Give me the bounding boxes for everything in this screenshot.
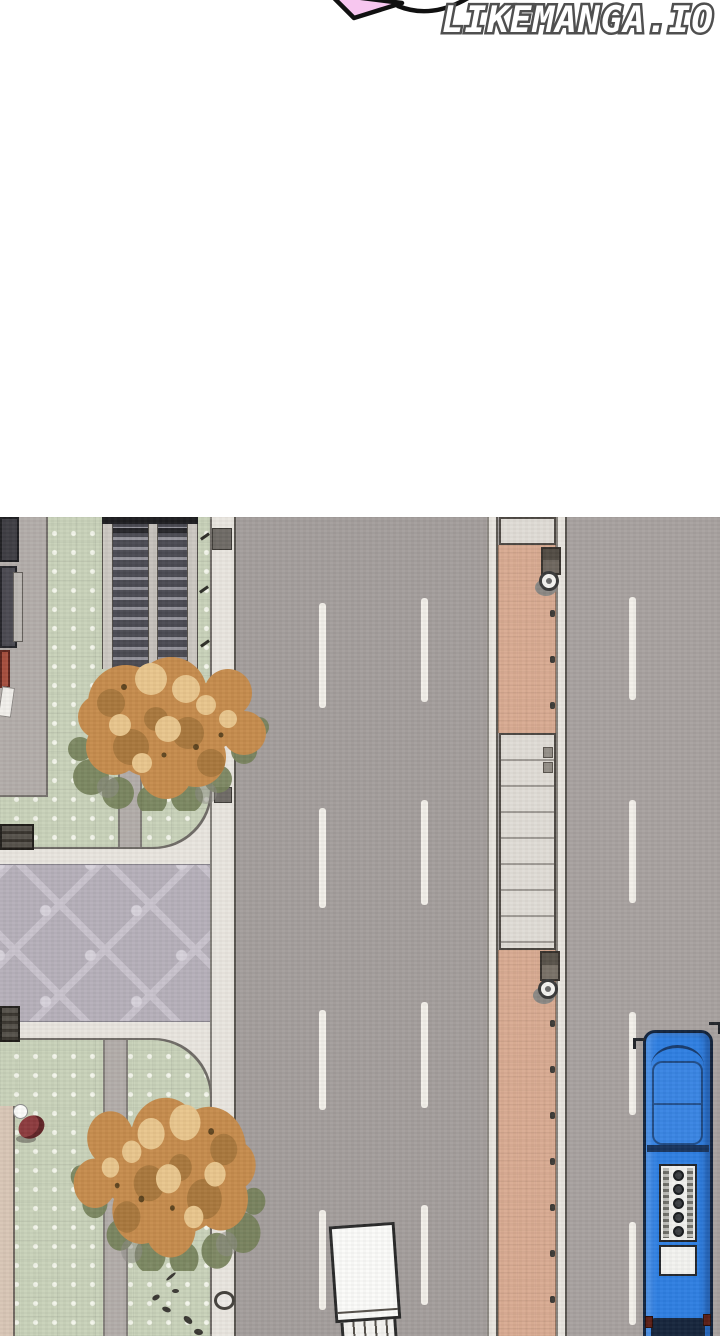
- lane-dash: [319, 808, 326, 908]
- truck-cab: [340, 1319, 398, 1336]
- road-median: [487, 517, 567, 1336]
- bubble-tail-shape: [330, 0, 402, 18]
- ramp-fixture: [543, 762, 553, 773]
- rooftop-panel: [13, 572, 23, 642]
- bus-roof-vent: [673, 1198, 684, 1209]
- bus-front-roof-panel: [652, 1061, 703, 1145]
- lane-dash: [629, 1012, 636, 1115]
- lane-dash: [421, 598, 428, 702]
- bollard: [550, 1066, 555, 1073]
- autumn-tree: [62, 1073, 277, 1271]
- median-curb-right: [556, 517, 567, 1336]
- median-pole: [539, 571, 559, 591]
- pedestrian-head: [13, 1104, 28, 1119]
- blue-bus: [643, 1030, 713, 1336]
- curb-grate: [212, 528, 232, 550]
- parked-scooter: [172, 1289, 179, 1293]
- bus-mirror-left-arm: [633, 1038, 636, 1049]
- tree-canopy: [68, 657, 269, 811]
- lane-dash: [629, 800, 636, 903]
- bollard: [550, 1204, 555, 1211]
- bus-roof-seam: [654, 1103, 701, 1105]
- red-kiosk: [0, 650, 10, 688]
- stair-beam: [158, 528, 187, 533]
- bus-roof-vent: [673, 1212, 684, 1223]
- bus-grille-slat: [687, 1168, 693, 1238]
- stair-entrance-beam: [102, 517, 198, 524]
- bollard: [550, 1250, 555, 1257]
- stair-beam: [113, 528, 148, 533]
- planter-wall: [0, 1106, 15, 1336]
- bench: [0, 1006, 20, 1042]
- ramp-fixture: [543, 747, 553, 758]
- lane-dash: [629, 1222, 636, 1325]
- median-ramp-top: [499, 517, 556, 545]
- lane-dash: [421, 1205, 428, 1305]
- bus-tail-light: [645, 1316, 653, 1328]
- plaza-crossing: [0, 864, 210, 1022]
- autumn-tree: [56, 635, 278, 811]
- bus-rear-roof-panel: [659, 1245, 697, 1276]
- shrub-mark: [199, 585, 209, 593]
- bus-roof-vent: [673, 1170, 684, 1181]
- bollard: [550, 656, 555, 663]
- lane-dash: [319, 603, 326, 708]
- bus-grille-slat: [663, 1168, 669, 1238]
- bollard: [550, 1020, 555, 1027]
- manga-page: { "watermark": { "text": "LIKEMANGA.IO" …: [0, 0, 720, 1336]
- bus-roof-vent: [673, 1226, 684, 1237]
- bus-rear-window: [651, 1318, 705, 1336]
- utility-box: [540, 951, 560, 981]
- street-scene: [0, 517, 720, 1336]
- lane-dash: [629, 597, 636, 700]
- shrub-mark: [200, 532, 210, 540]
- white-truck: [325, 1219, 406, 1336]
- rooftop-structure: [0, 517, 19, 562]
- bench: [0, 824, 34, 850]
- median-brick-lower: [498, 950, 556, 1336]
- lane-dash: [421, 800, 428, 905]
- tree-canopy: [71, 1098, 266, 1271]
- bus-roof-vent: [673, 1184, 684, 1195]
- bollard: [550, 702, 555, 709]
- bus-vent-panel: [659, 1164, 697, 1242]
- bus-tail-light: [703, 1314, 711, 1326]
- bike-rack-ring: [214, 1291, 235, 1310]
- bollard: [550, 1296, 555, 1303]
- median-curb-left: [487, 517, 498, 1336]
- lane-dash: [319, 1010, 326, 1110]
- bollard: [550, 610, 555, 617]
- bollard: [550, 1112, 555, 1119]
- bus-roof-band: [647, 1145, 709, 1152]
- lane-dash: [421, 1002, 428, 1108]
- site-watermark: LIKEMANGA.IO: [442, 2, 714, 40]
- bollard: [550, 1158, 555, 1165]
- truck-cargo-box: [329, 1222, 402, 1323]
- median-pole: [538, 979, 558, 999]
